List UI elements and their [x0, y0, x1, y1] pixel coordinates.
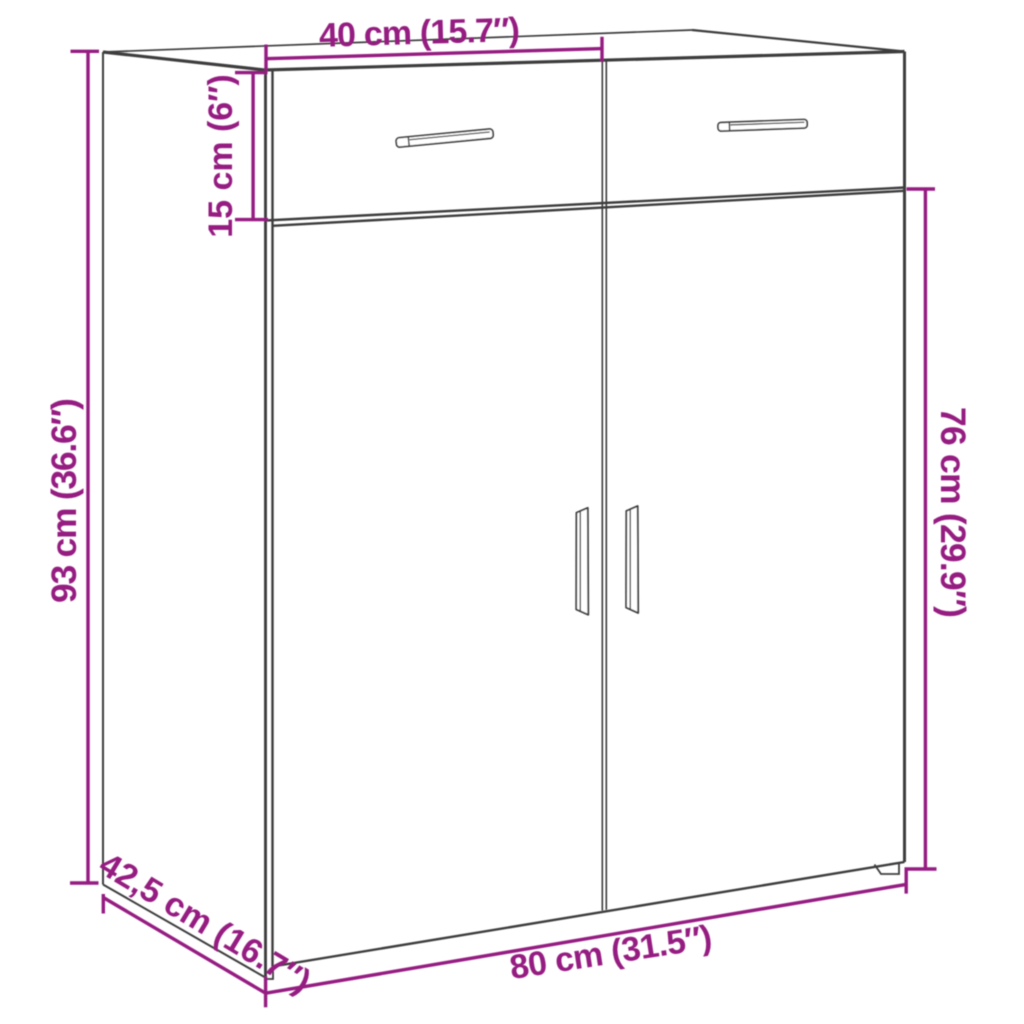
svg-text:40 cm (15.7″): 40 cm (15.7″) [318, 11, 520, 55]
svg-text:15 cm (6″): 15 cm (6″) [202, 74, 240, 238]
svg-text:93 cm (36.6″): 93 cm (36.6″) [44, 398, 84, 603]
svg-text:76 cm (29.9″): 76 cm (29.9″) [933, 407, 973, 618]
